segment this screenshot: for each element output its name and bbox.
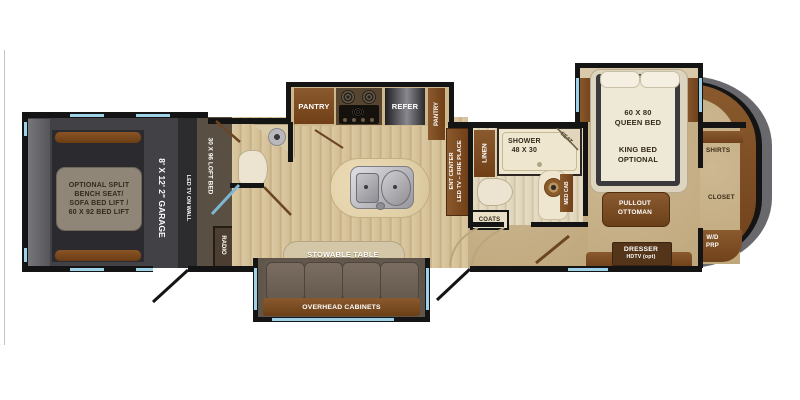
shower-seat-line	[557, 128, 578, 150]
entry-step-arc-2	[472, 228, 504, 266]
overlay-lines	[0, 0, 800, 400]
kitchen-door-line	[315, 130, 343, 148]
half-bath-door	[264, 187, 291, 215]
main-entry-door	[437, 269, 470, 300]
bedroom-step-railing	[536, 236, 569, 263]
loft-ladder	[212, 185, 239, 214]
garage-entry-door	[153, 270, 188, 302]
half-bath-door-top	[216, 121, 240, 142]
floorplan-canvas: OPTIONAL SPLIT BENCH SEAT/ SOFA BED LIFT…	[0, 0, 800, 400]
